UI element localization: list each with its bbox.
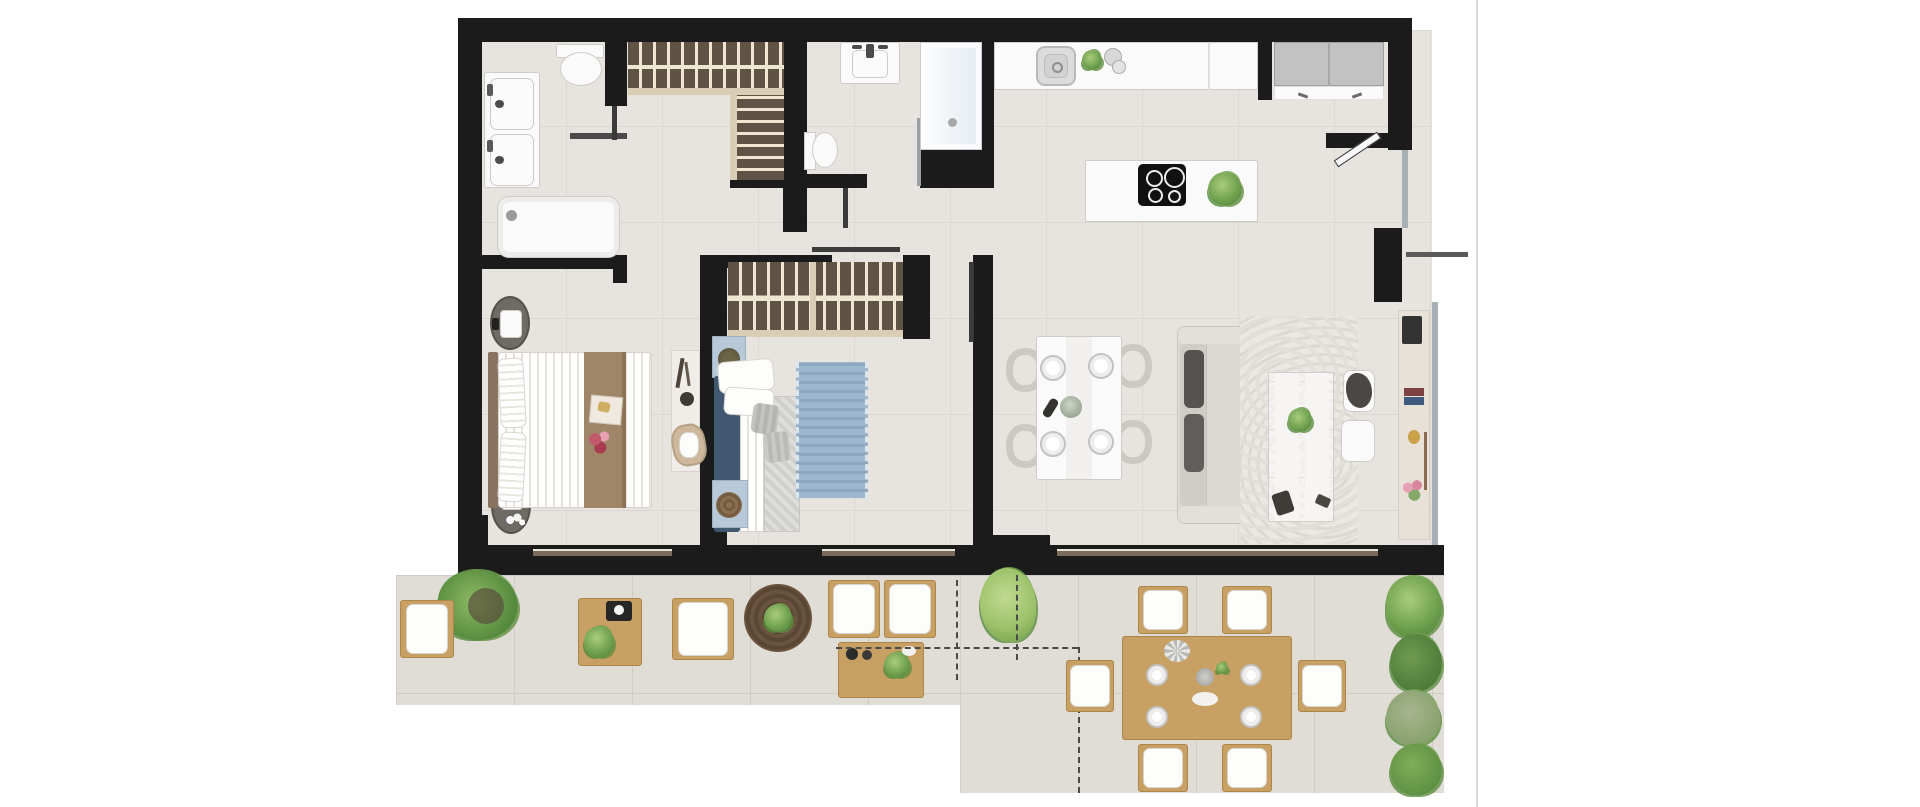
mug-icon	[614, 605, 624, 615]
console-tv-icon	[1402, 316, 1422, 344]
outdoor-cushion	[1227, 590, 1267, 630]
bed1-pillow	[497, 431, 527, 502]
rug-blue	[796, 362, 868, 498]
sprig-icon	[1216, 662, 1228, 674]
hob-burner-icon	[1164, 167, 1185, 188]
desk-chair-cushion	[679, 432, 699, 458]
wall-shower-south	[920, 150, 994, 188]
rug-plant-icon	[764, 604, 792, 632]
wardrobe-2-divider	[810, 262, 816, 332]
outdoor-plate	[1146, 664, 1168, 686]
bath1-door-leaf	[612, 106, 617, 140]
sofa-armrest	[1178, 327, 1246, 344]
window-bedroom2	[822, 549, 955, 556]
white-flowers-icon	[503, 512, 527, 528]
herb-plant-icon	[1082, 50, 1102, 70]
outdoor-cushion	[1302, 665, 1342, 707]
closet-slide-rail	[812, 247, 900, 252]
toilet-bowl	[560, 52, 602, 86]
pouf	[1341, 420, 1375, 462]
table2-plant-icon	[884, 652, 910, 678]
flower-pot-icon	[1400, 478, 1426, 502]
bed1-headboard	[488, 352, 498, 508]
outdoor-cushion	[1143, 748, 1183, 788]
bathtub	[497, 196, 620, 258]
outdoor-plate	[1240, 664, 1262, 686]
bath2-door-leaf	[843, 188, 848, 228]
knit-pillow-icon	[750, 402, 780, 435]
faucet-handle-icon	[878, 45, 888, 49]
toilet-2-bowl	[812, 132, 838, 168]
hob-burner-icon	[1168, 190, 1181, 203]
centerpiece-plant-icon	[1060, 396, 1082, 418]
wardrobe-2-trim	[728, 330, 903, 337]
soap-bottles-icon	[487, 84, 493, 96]
shower-tray	[920, 42, 982, 150]
folded-blanket-icon	[1346, 373, 1372, 408]
counter-divider	[1208, 42, 1210, 90]
cabinet-front	[1274, 86, 1384, 100]
lounge-cushion	[406, 604, 448, 654]
terrace-dashed-line	[956, 580, 958, 680]
outdoor-dining-table	[1122, 636, 1292, 740]
lounge-cushion	[678, 602, 728, 656]
wall-bed2-living	[973, 255, 993, 545]
desk-round-icon	[680, 392, 694, 406]
wardrobe-trim	[628, 88, 784, 95]
faucet-2-icon	[495, 156, 504, 164]
kitchen-counter	[994, 42, 1258, 90]
planter-plant-icon	[1390, 634, 1442, 692]
faucet-handle-icon	[852, 45, 862, 49]
wall-top	[458, 18, 1412, 42]
table-plant-icon	[584, 626, 614, 658]
outdoor-plate	[1146, 706, 1168, 728]
page-divider-line	[1476, 0, 1478, 807]
bed1-pillow	[497, 357, 527, 428]
hob-burner-icon	[1146, 170, 1163, 187]
wall-bath1-closet	[605, 42, 627, 106]
console-books-icon	[1404, 397, 1424, 405]
terrace-dashed-line	[836, 647, 1078, 649]
wall-living-step	[980, 535, 1050, 547]
jars-icon	[1112, 60, 1126, 74]
shower-drain-icon	[948, 118, 957, 127]
cup-icon	[862, 650, 872, 660]
wall-right-top	[1388, 18, 1412, 150]
sofa-armrest	[1178, 506, 1246, 523]
knob-icon	[492, 318, 499, 330]
console-books-icon	[1404, 388, 1424, 396]
wall-closet2-jamb	[903, 255, 930, 339]
planter-plant-icon	[1390, 744, 1442, 796]
fern-pot-base	[468, 588, 504, 624]
sofa-pillow-dark	[1184, 350, 1204, 408]
floor-plan-page	[0, 0, 1920, 807]
armchair-cushion	[889, 584, 931, 634]
bedroom2-door-leaf	[969, 262, 974, 342]
cabinet-divider	[1328, 42, 1330, 86]
outdoor-cushion	[1070, 665, 1110, 707]
side-window-lower	[1432, 302, 1438, 545]
lamp-icon	[500, 310, 522, 338]
outdoor-plate	[1240, 706, 1262, 728]
coffee-table-plant-icon	[1288, 408, 1312, 432]
faucet-1-icon	[495, 100, 504, 108]
vase-icon	[1196, 668, 1214, 686]
dish-icon	[1192, 692, 1218, 706]
sofa-seam	[1206, 344, 1207, 506]
bathtub-faucet-icon	[506, 210, 517, 221]
plate	[1088, 429, 1114, 455]
lettuce-plant-icon	[1208, 172, 1242, 206]
outdoor-cushion	[1143, 590, 1183, 630]
faucet-3-icon	[866, 44, 874, 58]
planter-plant-icon	[1386, 576, 1442, 638]
plate	[1088, 353, 1114, 379]
window-living-room	[1057, 549, 1378, 556]
wardrobe-shelves	[737, 95, 784, 180]
plate	[1040, 355, 1066, 381]
plate	[1040, 431, 1066, 457]
wall-bath1-jamb	[613, 269, 627, 283]
outdoor-cushion	[1227, 748, 1267, 788]
wall-tv	[1374, 228, 1402, 302]
wall-left	[458, 18, 482, 545]
wardrobe-trim	[730, 95, 737, 180]
window-master-bedroom	[533, 549, 672, 556]
wall-kitchen-stub	[1258, 42, 1272, 100]
planter-plant-icon	[1386, 690, 1440, 746]
wardrobe-hanging	[628, 42, 784, 90]
cup-icon	[846, 648, 858, 660]
hob-burner-icon	[1148, 188, 1163, 203]
flower-bouquet-icon	[586, 428, 612, 456]
side-window-upper	[1402, 150, 1408, 228]
knit-pillow-icon	[763, 431, 792, 464]
soap-bottles-icon	[487, 140, 493, 152]
tray-gold-icon	[597, 401, 611, 413]
sink-drain-icon	[1052, 62, 1063, 73]
railing-tick	[1406, 252, 1468, 257]
sofa-pillow-dark	[1184, 414, 1204, 472]
console-shelf	[1398, 310, 1430, 540]
wall-corner-step	[458, 515, 488, 547]
table-fan-icon	[1164, 640, 1190, 662]
console-gold-icon	[1408, 430, 1420, 444]
woven-pouf-icon	[716, 492, 742, 518]
bath1-partition	[570, 133, 627, 139]
terrace-fern-icon	[980, 568, 1036, 642]
armchair-cushion	[833, 584, 875, 634]
